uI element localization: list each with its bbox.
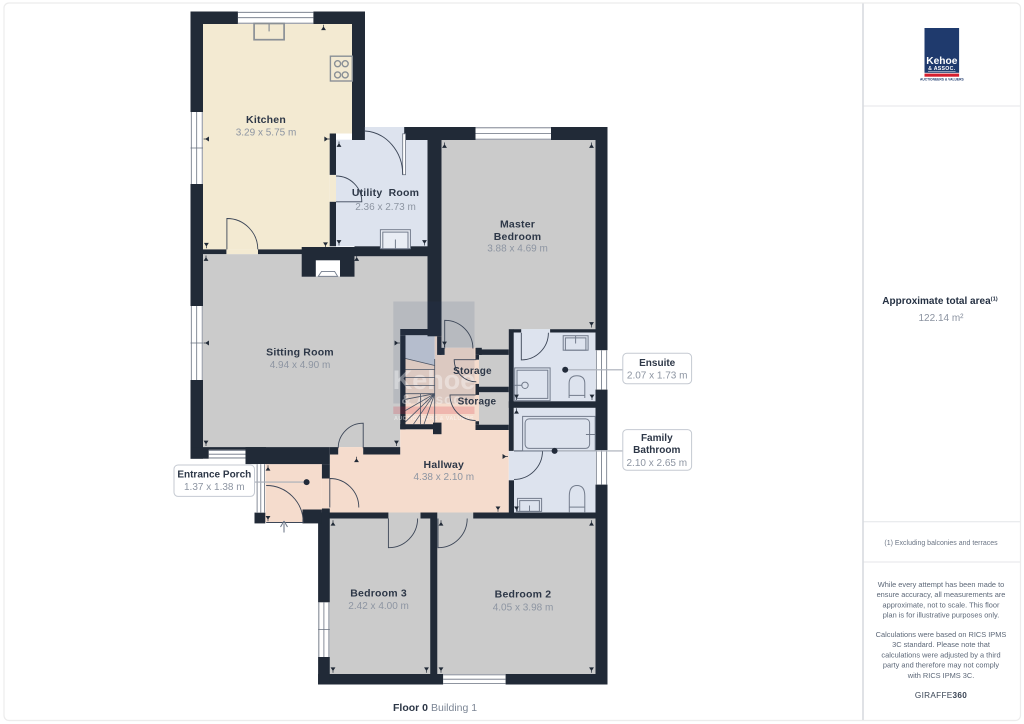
- svg-text:2.42 x 4.00 m: 2.42 x 4.00 m: [348, 601, 409, 612]
- svg-text:calculations were adjusted by: calculations were adjusted by a third: [881, 650, 1000, 659]
- svg-text:Calculations were based on RIC: Calculations were based on RICS IPMS: [876, 630, 1007, 639]
- svg-text:Kitchen: Kitchen: [246, 114, 286, 126]
- svg-text:party and therefore may not co: party and therefore may not comply: [883, 661, 1000, 670]
- svg-text:2.10 x 2.65 m: 2.10 x 2.65 m: [627, 458, 688, 469]
- svg-text:(1) Excluding balconies and te: (1) Excluding balconies and terraces: [884, 540, 998, 547]
- svg-text:Sitting Room: Sitting Room: [266, 347, 334, 359]
- svg-text:Bedroom 2: Bedroom 2: [495, 589, 552, 601]
- svg-text:Bedroom: Bedroom: [494, 231, 542, 243]
- svg-text:Approximate total area(1): Approximate total area(1): [882, 296, 998, 307]
- svg-text:Floor 0: Floor 0: [393, 702, 428, 714]
- svg-text:Ensuite: Ensuite: [639, 358, 676, 369]
- svg-text:& ASSOC.: & ASSOC.: [928, 66, 956, 72]
- svg-text:Hallway: Hallway: [424, 459, 465, 471]
- svg-text:2.36 x 2.73 m: 2.36 x 2.73 m: [355, 202, 416, 213]
- svg-text:2.07 x 1.73 m: 2.07 x 1.73 m: [627, 371, 688, 382]
- svg-text:Bathroom: Bathroom: [633, 445, 680, 456]
- svg-text:4.38 x 2.10 m: 4.38 x 2.10 m: [414, 472, 475, 483]
- svg-text:3.88 x 4.69 m: 3.88 x 4.69 m: [487, 244, 548, 255]
- svg-text:Storage: Storage: [458, 397, 497, 408]
- svg-text:1.37 x 1.38 m: 1.37 x 1.38 m: [184, 482, 245, 493]
- svg-text:4.05 x 3.98 m: 4.05 x 3.98 m: [493, 603, 554, 614]
- svg-text:Utility Room: Utility Room: [352, 187, 419, 199]
- svg-text:ensure accuracy, all measureme: ensure accuracy, all measurements are: [877, 590, 1006, 599]
- svg-text:3C standard. Please note that: 3C standard. Please note that: [892, 640, 990, 649]
- svg-text:AUCTIONEERS & VALUERS: AUCTIONEERS & VALUERS: [920, 78, 965, 82]
- svg-text:plan is for illustrative purpo: plan is for illustrative purposes only.: [883, 611, 1000, 620]
- svg-text:Storage: Storage: [453, 366, 492, 377]
- svg-text:Master: Master: [500, 219, 535, 231]
- svg-text:GIRAFFE360: GIRAFFE360: [915, 691, 967, 700]
- svg-text:approximate, not to scale. Thi: approximate, not to scale. This floor: [883, 600, 1000, 609]
- svg-text:with RICS IPMS 3C.: with RICS IPMS 3C.: [907, 671, 975, 680]
- svg-text:122.14 m²: 122.14 m²: [918, 313, 964, 324]
- svg-text:Entrance Porch: Entrance Porch: [177, 470, 251, 481]
- svg-text:Building 1: Building 1: [431, 702, 477, 714]
- svg-text:Family: Family: [641, 433, 673, 444]
- svg-text:3.29 x 5.75 m: 3.29 x 5.75 m: [236, 128, 297, 139]
- svg-text:Bedroom 3: Bedroom 3: [350, 588, 407, 600]
- svg-text:While every attempt has been m: While every attempt has been made to: [878, 580, 1005, 589]
- svg-text:4.94 x 4.90 m: 4.94 x 4.90 m: [270, 360, 331, 371]
